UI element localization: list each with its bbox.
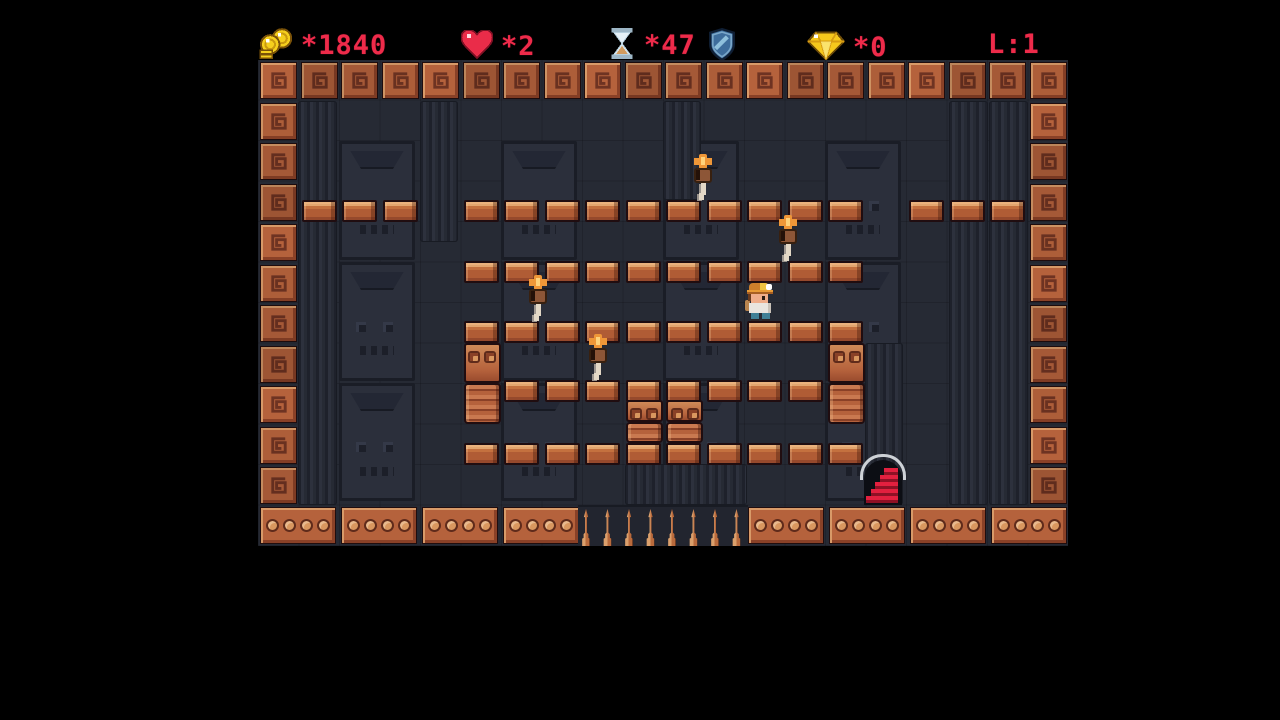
circle-carving bbox=[788, 519, 801, 532]
wall-chevron-carving bbox=[350, 393, 403, 411]
exit-step bbox=[875, 482, 898, 489]
game-field[interactable] bbox=[258, 60, 1068, 546]
platform-brick bbox=[383, 200, 418, 222]
platform-brick bbox=[464, 261, 499, 283]
coins-icon bbox=[259, 28, 295, 64]
totem-ribbed-block bbox=[828, 383, 865, 424]
torch-flame-core bbox=[786, 218, 790, 226]
circle-carving bbox=[754, 519, 767, 532]
platform-brick bbox=[626, 321, 661, 343]
wall-pillar bbox=[949, 101, 988, 505]
platform-brick bbox=[666, 321, 701, 343]
border-spiral-tile bbox=[625, 62, 662, 99]
lives-value: *2 bbox=[501, 32, 536, 62]
circle-carving bbox=[771, 519, 784, 532]
torch bbox=[689, 154, 717, 200]
border-spiral-tile bbox=[1030, 386, 1067, 423]
platform-brick bbox=[504, 200, 539, 222]
circle-carving bbox=[509, 519, 522, 532]
wall-face-mouth bbox=[360, 346, 394, 355]
circle-carving bbox=[283, 519, 296, 532]
circle-carving bbox=[543, 519, 556, 532]
border-spiral-tile bbox=[584, 62, 621, 99]
circle-carving bbox=[1031, 519, 1044, 532]
wall-chevron-carving bbox=[836, 151, 889, 169]
border-spiral-tile bbox=[827, 62, 864, 99]
border-spiral-tile bbox=[463, 62, 500, 99]
platform-brick bbox=[545, 321, 580, 343]
circle-carving bbox=[428, 519, 441, 532]
totem-eye bbox=[630, 408, 642, 420]
wall-face-mouth bbox=[846, 225, 880, 234]
time-value: *47 bbox=[644, 31, 696, 61]
totem-eye bbox=[671, 408, 683, 420]
torch-flame-core bbox=[536, 278, 540, 286]
platform-brick bbox=[302, 200, 337, 222]
platform-brick bbox=[828, 261, 863, 283]
totem-eye bbox=[468, 351, 480, 363]
torch-skull-head bbox=[589, 348, 607, 363]
torch-stick bbox=[784, 254, 789, 261]
platform-brick bbox=[707, 200, 742, 222]
torch bbox=[524, 275, 552, 321]
border-spiral-tile bbox=[1030, 346, 1067, 383]
border-spiral-tile bbox=[260, 305, 297, 342]
border-spiral-tile bbox=[260, 62, 297, 99]
platform-brick bbox=[747, 321, 782, 343]
platform-brick bbox=[504, 380, 539, 402]
wall-face-eye bbox=[869, 322, 879, 332]
coins-counter: *1840 bbox=[259, 28, 387, 64]
border-circle-tile bbox=[748, 507, 824, 544]
border-spiral-tile bbox=[260, 184, 297, 221]
level-indicator: L:1 bbox=[988, 30, 1040, 60]
border-spiral-tile bbox=[1030, 305, 1067, 342]
circle-carving bbox=[916, 519, 929, 532]
player-eye bbox=[762, 296, 765, 300]
platform-brick bbox=[585, 443, 620, 465]
border-spiral-tile bbox=[787, 62, 824, 99]
platform-brick bbox=[464, 443, 499, 465]
border-spiral-tile bbox=[1030, 265, 1067, 302]
platform-brick bbox=[545, 200, 580, 222]
border-circle-tile bbox=[910, 507, 986, 544]
platform-brick bbox=[545, 443, 580, 465]
torch-stick bbox=[699, 193, 704, 200]
platform-brick bbox=[626, 380, 661, 402]
platform-brick bbox=[666, 261, 701, 283]
border-spiral-tile bbox=[341, 62, 378, 99]
border-spiral-tile bbox=[260, 265, 297, 302]
wall-face-mouth bbox=[522, 467, 556, 476]
gems-value: *0 bbox=[853, 33, 888, 63]
wall-face-eye bbox=[356, 442, 366, 452]
wall-face-mouth bbox=[522, 346, 556, 355]
circle-carving bbox=[462, 519, 475, 532]
border-spiral-tile bbox=[1030, 103, 1067, 140]
wall-chevron-carving bbox=[350, 272, 403, 290]
circle-carving bbox=[445, 519, 458, 532]
totem-eye bbox=[849, 351, 861, 363]
totem-eye bbox=[833, 351, 845, 363]
platform-brick bbox=[545, 380, 580, 402]
border-spiral-tile bbox=[422, 62, 459, 99]
border-circle-tile bbox=[829, 507, 905, 544]
totem-eye bbox=[687, 408, 699, 420]
platform-brick bbox=[707, 380, 742, 402]
platform-brick bbox=[707, 261, 742, 283]
circle-carving bbox=[805, 519, 818, 532]
time-counter: *47 bbox=[610, 28, 696, 63]
circle-carving bbox=[852, 519, 865, 532]
exit-alcove bbox=[864, 460, 902, 505]
torch-skull-eye bbox=[591, 355, 595, 360]
circle-carving bbox=[347, 519, 360, 532]
border-spiral-tile bbox=[1030, 427, 1067, 464]
platform-brick bbox=[666, 200, 701, 222]
wall-face-eye bbox=[383, 442, 393, 452]
totem-eye bbox=[646, 408, 658, 420]
hourglass-icon bbox=[610, 28, 634, 63]
player-headlamp bbox=[766, 284, 772, 290]
platform-brick bbox=[950, 200, 985, 222]
wall-pillar bbox=[625, 464, 747, 505]
platform-brick bbox=[990, 200, 1025, 222]
exit-step bbox=[866, 496, 898, 503]
border-spiral-tile bbox=[301, 62, 338, 99]
border-spiral-tile bbox=[908, 62, 945, 99]
torch-stick bbox=[594, 373, 599, 380]
border-spiral-tile bbox=[260, 224, 297, 261]
platform-brick bbox=[504, 443, 539, 465]
border-spiral-tile bbox=[260, 103, 297, 140]
lives-counter: *2 bbox=[461, 30, 536, 63]
heart-icon bbox=[461, 30, 493, 63]
circle-carving bbox=[317, 519, 330, 532]
wall-pillar bbox=[298, 101, 337, 505]
border-spiral-tile bbox=[1030, 62, 1067, 99]
platform-brick bbox=[504, 321, 539, 343]
platform-brick bbox=[788, 380, 823, 402]
circle-carving bbox=[886, 519, 899, 532]
border-spiral-tile bbox=[706, 62, 743, 99]
wall-face-eye bbox=[383, 322, 393, 332]
border-spiral-tile bbox=[949, 62, 986, 99]
coins-value: *1840 bbox=[301, 31, 387, 61]
torch bbox=[774, 215, 802, 261]
circle-carving bbox=[381, 519, 394, 532]
platform-brick bbox=[788, 443, 823, 465]
player-face bbox=[751, 294, 768, 303]
wall-pillar bbox=[420, 101, 458, 242]
platform-brick bbox=[747, 261, 782, 283]
border-circle-tile bbox=[991, 507, 1067, 544]
circle-carving bbox=[933, 519, 946, 532]
border-spiral-tile bbox=[544, 62, 581, 99]
torch-skull-head bbox=[779, 229, 797, 244]
platform-brick bbox=[342, 200, 377, 222]
player-character bbox=[745, 283, 775, 321]
circle-carving bbox=[1014, 519, 1027, 532]
circle-carving bbox=[1048, 519, 1061, 532]
totem-ribbed-block bbox=[626, 422, 663, 443]
border-spiral-tile bbox=[665, 62, 702, 99]
border-spiral-tile bbox=[260, 386, 297, 423]
circle-carving bbox=[364, 519, 377, 532]
torch-skull-eye bbox=[781, 236, 785, 241]
border-spiral-tile bbox=[503, 62, 540, 99]
platform-brick bbox=[909, 200, 944, 222]
exit-step bbox=[884, 468, 898, 475]
circle-carving bbox=[266, 519, 279, 532]
border-spiral-tile bbox=[1030, 467, 1067, 504]
border-spiral-tile bbox=[989, 62, 1026, 99]
exit-stairway bbox=[856, 454, 910, 505]
border-circle-tile bbox=[422, 507, 498, 544]
platform-brick bbox=[626, 200, 661, 222]
torch-flame-core bbox=[701, 157, 705, 165]
player-leg bbox=[762, 313, 770, 321]
platform-brick bbox=[626, 443, 661, 465]
platform-brick bbox=[464, 321, 499, 343]
border-spiral-tile bbox=[1030, 143, 1067, 180]
border-spiral-tile bbox=[260, 427, 297, 464]
border-spiral-tile bbox=[260, 143, 297, 180]
torch-skull-eye bbox=[531, 296, 535, 301]
torch bbox=[584, 334, 612, 380]
hud: *1840 *2 *47 bbox=[0, 0, 1280, 62]
platform-brick bbox=[585, 380, 620, 402]
circle-carving bbox=[835, 519, 848, 532]
border-spiral-tile bbox=[1030, 184, 1067, 221]
wall-face-mouth bbox=[684, 346, 718, 355]
torch-skull-eye bbox=[696, 175, 700, 180]
circle-carving bbox=[300, 519, 313, 532]
spike-pit-floor bbox=[578, 505, 748, 546]
game-screen: *1840 *2 *47 bbox=[0, 0, 1280, 720]
border-spiral-tile bbox=[260, 467, 297, 504]
wall-panel bbox=[339, 262, 415, 381]
border-spiral-tile bbox=[382, 62, 419, 99]
platform-brick bbox=[626, 261, 661, 283]
wall-face-eye bbox=[869, 201, 879, 211]
wall-panel bbox=[339, 383, 415, 501]
platform-brick bbox=[585, 261, 620, 283]
platform-brick bbox=[707, 443, 742, 465]
platform-brick bbox=[747, 443, 782, 465]
wall-pillar bbox=[989, 101, 1028, 505]
wall-face-mouth bbox=[684, 225, 718, 234]
platform-brick bbox=[828, 200, 863, 222]
player-shirt bbox=[749, 303, 771, 313]
platform-brick bbox=[666, 380, 701, 402]
circle-carving bbox=[997, 519, 1010, 532]
wall-face-mouth bbox=[360, 467, 394, 476]
exit-step bbox=[871, 489, 899, 496]
torch-skull-head bbox=[529, 289, 547, 304]
circle-carving bbox=[950, 519, 963, 532]
border-spiral-tile bbox=[746, 62, 783, 99]
platform-brick bbox=[464, 200, 499, 222]
torch-stick bbox=[534, 314, 539, 321]
platform-brick bbox=[747, 380, 782, 402]
totem-eyes-block bbox=[828, 343, 865, 383]
totem-ribbed-block bbox=[666, 422, 703, 443]
wall-chevron-carving bbox=[350, 151, 403, 169]
player-leg bbox=[751, 313, 759, 321]
wall-face-mouth bbox=[360, 225, 394, 234]
circle-carving bbox=[560, 519, 573, 532]
level-label: L:1 bbox=[988, 30, 1040, 60]
exit-step bbox=[880, 475, 899, 482]
border-circle-tile bbox=[260, 507, 336, 544]
border-spiral-tile bbox=[260, 346, 297, 383]
totem-eyes-block bbox=[464, 343, 501, 383]
border-circle-tile bbox=[503, 507, 579, 544]
circle-carving bbox=[869, 519, 882, 532]
wall-face-mouth bbox=[522, 225, 556, 234]
border-spiral-tile bbox=[1030, 224, 1067, 261]
totem-ribbed-block bbox=[464, 383, 501, 424]
platform-brick bbox=[666, 443, 701, 465]
border-spiral-tile bbox=[868, 62, 905, 99]
circle-carving bbox=[479, 519, 492, 532]
wall-face-eye bbox=[356, 322, 366, 332]
totem-eye bbox=[484, 351, 496, 363]
circle-carving bbox=[398, 519, 411, 532]
torch-flame-core bbox=[596, 337, 600, 345]
wall-chevron-carving bbox=[512, 151, 565, 169]
platform-brick bbox=[828, 321, 863, 343]
platform-brick bbox=[788, 261, 823, 283]
border-circle-tile bbox=[341, 507, 417, 544]
totem-eyes-block bbox=[626, 400, 663, 422]
platform-brick bbox=[788, 321, 823, 343]
totem-eyes-block bbox=[666, 400, 703, 422]
torch-skull-head bbox=[694, 168, 712, 183]
circle-carving bbox=[967, 519, 980, 532]
circle-carving bbox=[526, 519, 539, 532]
platform-brick bbox=[585, 200, 620, 222]
player-hair bbox=[748, 294, 751, 301]
platform-brick bbox=[707, 321, 742, 343]
